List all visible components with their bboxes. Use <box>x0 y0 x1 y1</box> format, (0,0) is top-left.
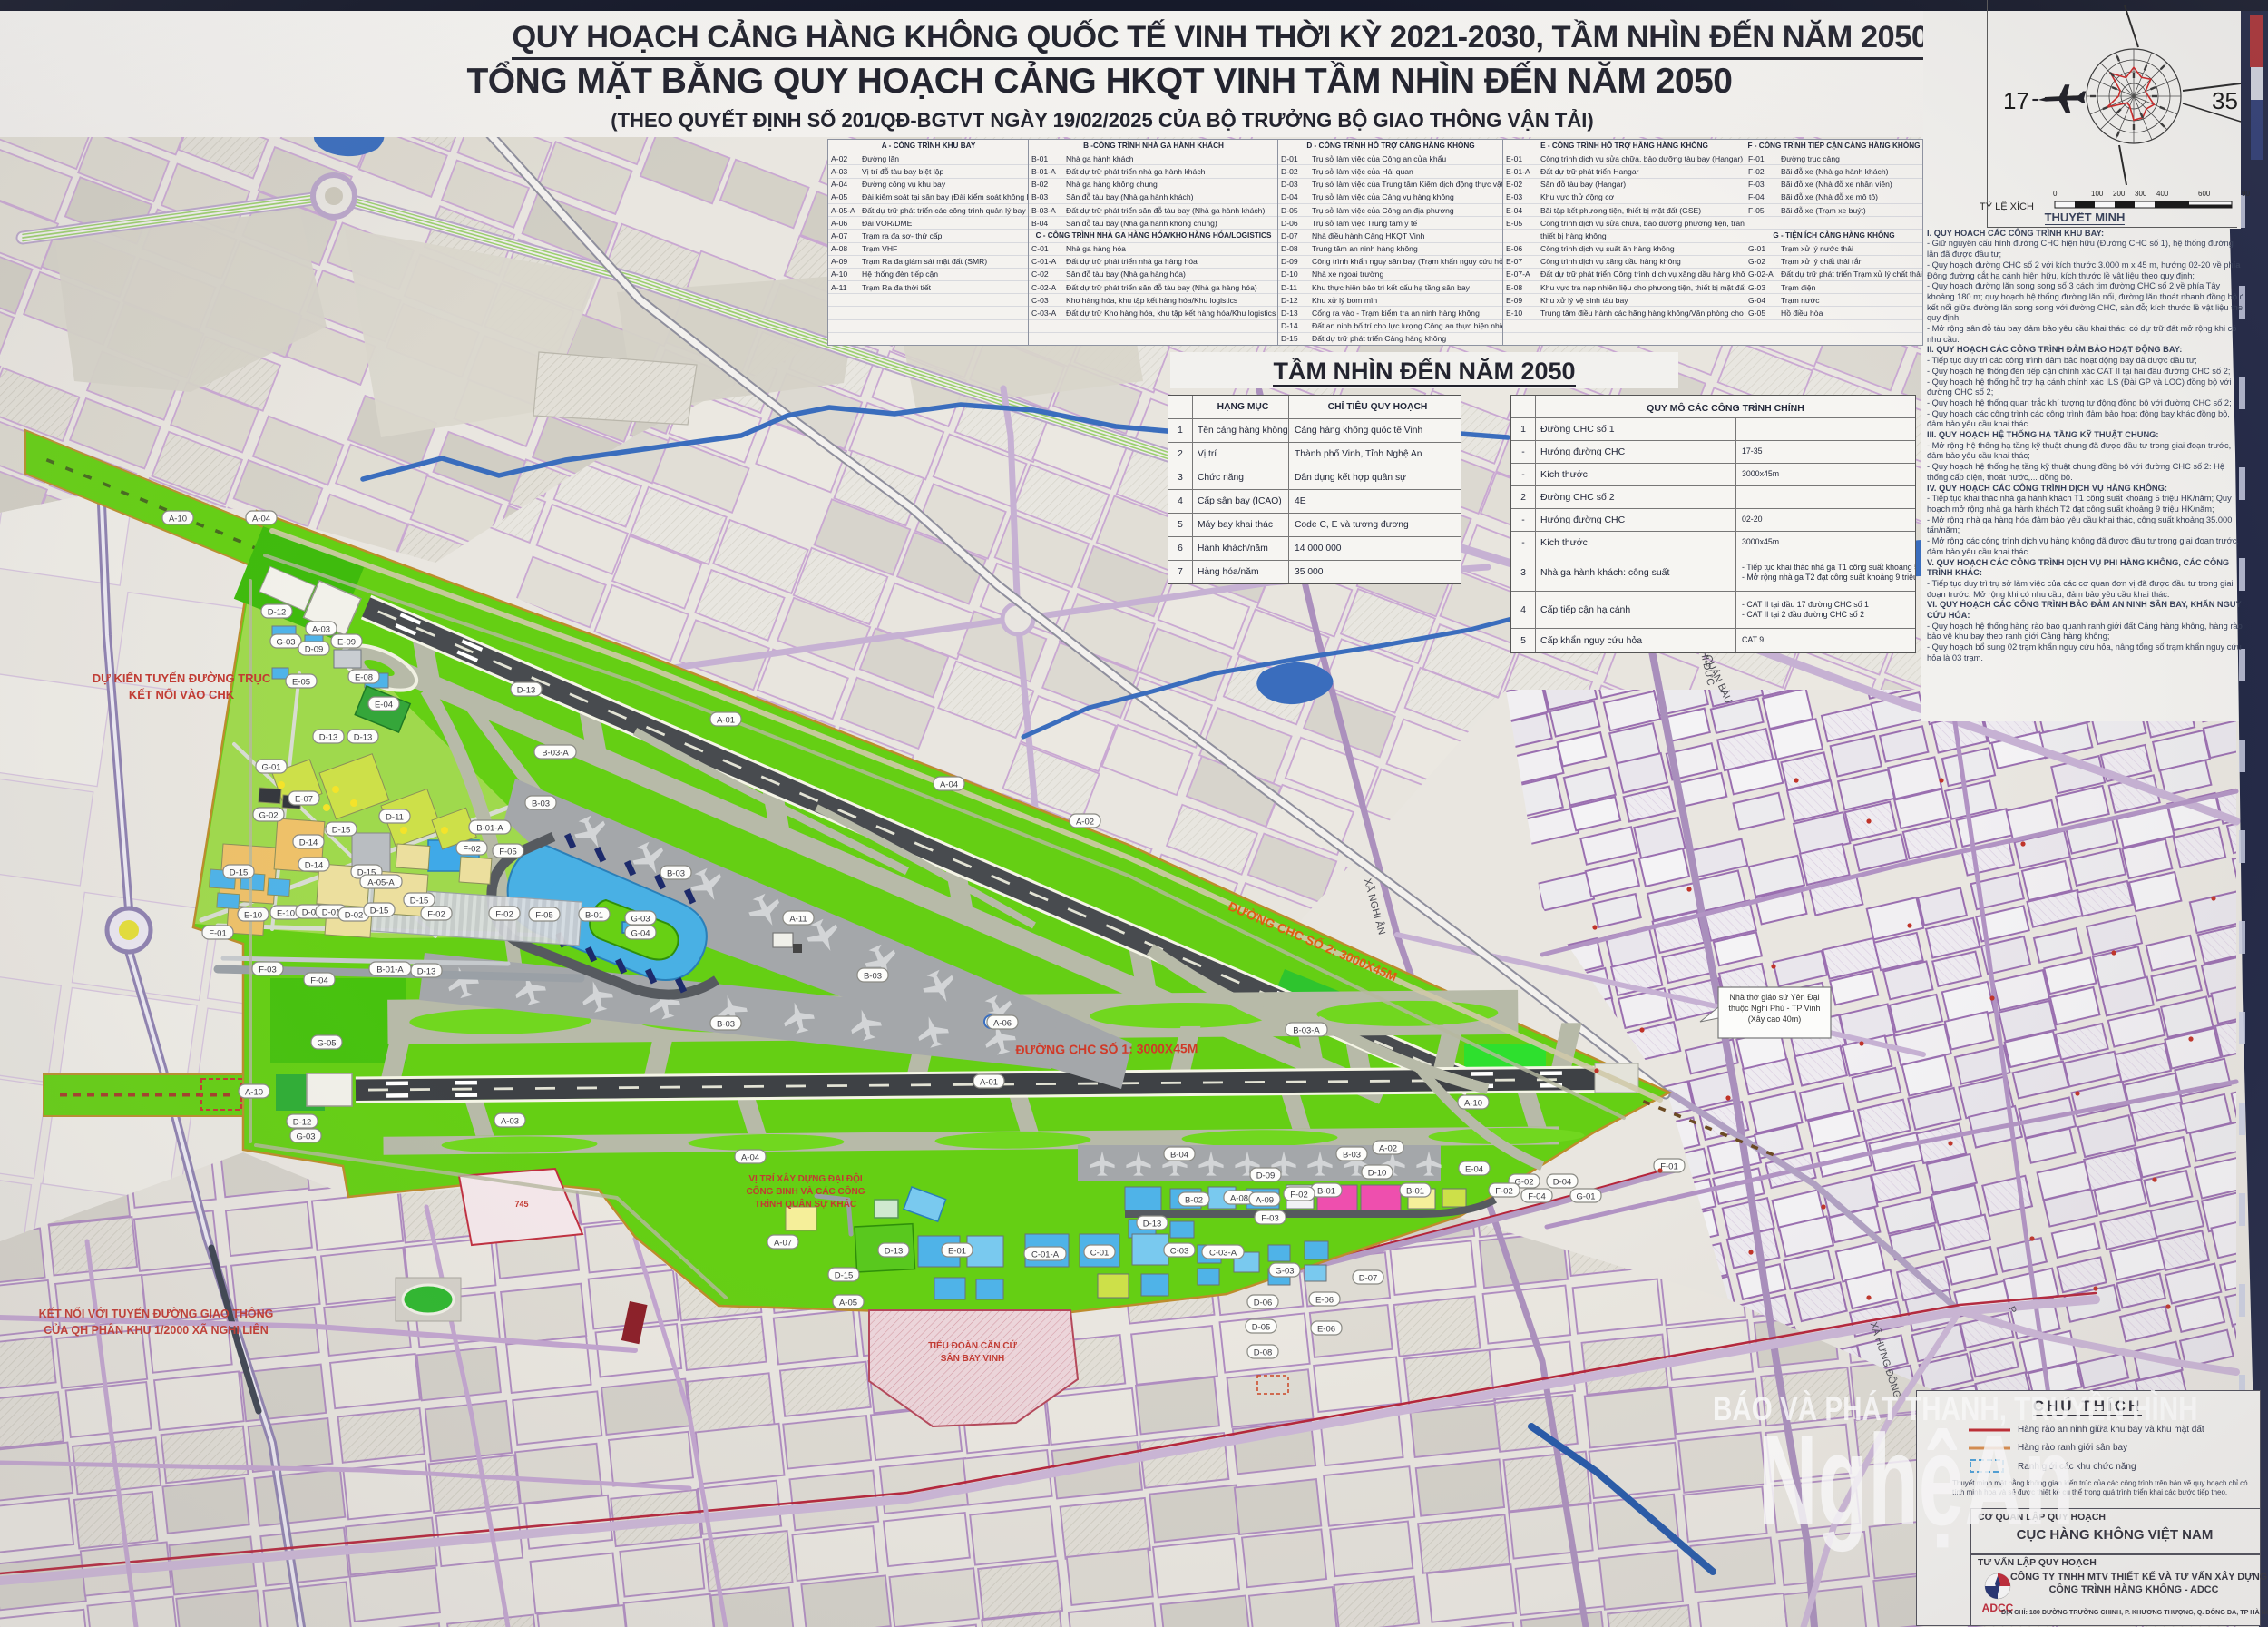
svg-text:E-08: E-08 <box>355 673 373 683</box>
svg-text:G-01: G-01 <box>1576 1192 1595 1202</box>
svg-text:A-05-A: A-05-A <box>367 878 395 888</box>
svg-text:F-02: F-02 <box>1290 1191 1308 1201</box>
svg-text:B-02: B-02 <box>1185 1196 1203 1206</box>
svg-text:D-15: D-15 <box>332 826 351 836</box>
svg-text:D-14: D-14 <box>299 838 318 848</box>
svg-text:D-07: D-07 <box>1359 1274 1378 1284</box>
svg-text:C-01: C-01 <box>1090 1249 1110 1259</box>
svg-text:TIỂU ĐOÀN CĂN CỨ: TIỂU ĐOÀN CĂN CỨ <box>928 1339 1017 1351</box>
svg-text:B-03: B-03 <box>717 1020 735 1030</box>
svg-text:B-03: B-03 <box>667 869 685 879</box>
svg-text:A-02: A-02 <box>1076 818 1094 828</box>
svg-text:TRÌNH QUÂN SỰ KHÁC: TRÌNH QUÂN SỰ KHÁC <box>755 1198 856 1210</box>
svg-text:F-04: F-04 <box>310 976 328 986</box>
svg-text:D-08: D-08 <box>1254 1348 1273 1358</box>
svg-text:DỰ KIẾN TUYẾN ĐƯỜNG TRỤC: DỰ KIẾN TUYẾN ĐƯỜNG TRỤC <box>93 671 271 685</box>
svg-text:400: 400 <box>2156 190 2169 198</box>
svg-text:Nhà thờ giáo sứ Yên Đại: Nhà thờ giáo sứ Yên Đại <box>1729 993 1819 1002</box>
svg-text:35: 35 <box>2212 87 2238 114</box>
svg-text:100: 100 <box>2091 190 2104 198</box>
svg-text:D-11: D-11 <box>386 813 404 823</box>
svg-text:D-13: D-13 <box>1143 1220 1162 1230</box>
svg-text:17: 17 <box>2003 87 2029 114</box>
svg-text:E-09: E-09 <box>337 638 356 648</box>
svg-text:G-04: G-04 <box>631 929 650 939</box>
svg-text:D-12: D-12 <box>293 1118 312 1128</box>
svg-text:A-01: A-01 <box>980 1078 998 1088</box>
svg-text:F-05: F-05 <box>535 911 553 921</box>
svg-text:F-01: F-01 <box>1660 1162 1678 1172</box>
svg-text:G-05: G-05 <box>317 1039 336 1049</box>
svg-text:G-03: G-03 <box>1275 1267 1294 1277</box>
svg-text:E-01: E-01 <box>948 1247 966 1257</box>
svg-text:(Xây cao 40m): (Xây cao 40m) <box>1748 1014 1802 1024</box>
svg-text:E-05: E-05 <box>292 678 310 688</box>
svg-text:900: 900 <box>2242 190 2250 198</box>
svg-text:D-02: D-02 <box>345 911 364 921</box>
svg-text:D-14: D-14 <box>305 861 324 871</box>
svg-text:200: 200 <box>2113 190 2126 198</box>
svg-text:F-02: F-02 <box>495 910 513 920</box>
svg-text:B-04: B-04 <box>1170 1151 1188 1161</box>
svg-text:0: 0 <box>2053 190 2058 198</box>
svg-text:F-02: F-02 <box>463 845 481 855</box>
svg-text:B-03-A: B-03-A <box>542 749 569 759</box>
svg-text:D-15: D-15 <box>835 1271 854 1281</box>
svg-text:E-10: E-10 <box>244 911 262 921</box>
svg-text:C-03: C-03 <box>1170 1247 1189 1257</box>
svg-text:B-03-A: B-03-A <box>1293 1026 1320 1036</box>
svg-text:E-04: E-04 <box>1465 1165 1483 1175</box>
svg-text:A-11: A-11 <box>789 915 807 925</box>
svg-text:D-13: D-13 <box>517 686 536 696</box>
svg-text:VỊ TRÍ XÂY DỰNG ĐẠI ĐỘI: VỊ TRÍ XÂY DỰNG ĐẠI ĐỘI <box>748 1172 863 1184</box>
svg-text:D-04: D-04 <box>1553 1178 1572 1188</box>
svg-text:300: 300 <box>2135 190 2147 198</box>
svg-text:D-09: D-09 <box>305 645 324 655</box>
svg-text:B-01-A: B-01-A <box>476 824 503 834</box>
svg-text:D-09: D-09 <box>1256 1171 1276 1181</box>
svg-text:F-04: F-04 <box>1528 1192 1546 1202</box>
svg-text:F-05: F-05 <box>499 848 517 858</box>
svg-text:D-15: D-15 <box>370 907 389 916</box>
svg-text:A-10: A-10 <box>1464 1099 1482 1109</box>
svg-text:A-09: A-09 <box>1256 1196 1274 1206</box>
svg-text:D-05: D-05 <box>1252 1323 1271 1333</box>
svg-text:C-03-A: C-03-A <box>1209 1249 1237 1259</box>
svg-text:A-04: A-04 <box>252 515 270 524</box>
svg-text:ĐƯỜNG CHC SỐ 1: 3000X45M: ĐƯỜNG CHC SỐ 1: 3000X45M <box>1015 1040 1198 1057</box>
svg-text:G-03: G-03 <box>631 915 650 925</box>
svg-text:A-02: A-02 <box>1379 1144 1397 1154</box>
svg-text:A-05: A-05 <box>839 1299 857 1308</box>
svg-text:G-03: G-03 <box>296 1132 315 1142</box>
svg-text:KẾT NỐI VỚI TUYẾN ĐƯỜNG GIAO T: KẾT NỐI VỚI TUYẾN ĐƯỜNG GIAO THÔNG <box>39 1307 274 1320</box>
svg-text:D-13: D-13 <box>885 1247 904 1257</box>
svg-text:D-12: D-12 <box>268 608 287 618</box>
svg-text:F-01: F-01 <box>209 929 227 939</box>
svg-text:D-15: D-15 <box>230 868 249 878</box>
svg-text:TỶ LỆ XÍCH: TỶ LỆ XÍCH <box>1980 201 2034 212</box>
svg-text:A-04: A-04 <box>741 1153 759 1163</box>
svg-text:F-03: F-03 <box>1261 1214 1279 1224</box>
svg-text:CỦA QH PHÂN KHU 1/2000 XÃ NGHI: CỦA QH PHÂN KHU 1/2000 XÃ NGHI LIÊN <box>44 1323 269 1337</box>
svg-text:C-01-A: C-01-A <box>1031 1250 1060 1260</box>
svg-text:CÔNG BINH VÀ CÁC CÔNG: CÔNG BINH VÀ CÁC CÔNG <box>746 1185 865 1197</box>
svg-text:A-04: A-04 <box>940 780 958 790</box>
svg-text:A-07: A-07 <box>774 1239 792 1249</box>
svg-text:E-10: E-10 <box>277 909 295 919</box>
svg-text:D-13: D-13 <box>319 733 338 743</box>
svg-text:SÂN BAY VINH: SÂN BAY VINH <box>941 1352 1005 1364</box>
svg-text:A-06: A-06 <box>993 1019 1012 1029</box>
svg-text:KẾT NỐI VÀO CHK: KẾT NỐI VÀO CHK <box>129 688 235 701</box>
svg-text:F-02: F-02 <box>1495 1187 1513 1197</box>
svg-text:B-01: B-01 <box>585 911 603 921</box>
svg-text:E-06: E-06 <box>1315 1296 1334 1306</box>
svg-text:A-01: A-01 <box>717 716 735 726</box>
svg-text:D-13: D-13 <box>417 967 436 977</box>
svg-text:B-03: B-03 <box>532 799 550 809</box>
svg-text:F-02: F-02 <box>427 910 445 920</box>
svg-text:A-08: A-08 <box>1230 1194 1248 1204</box>
svg-text:B-03: B-03 <box>1343 1151 1361 1161</box>
svg-text:E-04: E-04 <box>375 701 393 711</box>
svg-text:D-10: D-10 <box>1368 1169 1387 1179</box>
svg-text:B-01: B-01 <box>1317 1187 1335 1197</box>
svg-text:thuộc Nghi Phú - TP Vinh: thuộc Nghi Phú - TP Vinh <box>1728 1004 1820 1013</box>
svg-text:F-03: F-03 <box>259 965 277 975</box>
svg-text:B-01-A: B-01-A <box>376 965 404 975</box>
svg-text:D-15: D-15 <box>410 897 429 907</box>
svg-text:E-06: E-06 <box>1317 1325 1335 1335</box>
svg-text:G-03: G-03 <box>276 638 295 648</box>
svg-text:600: 600 <box>2198 190 2211 198</box>
svg-text:D-06: D-06 <box>1254 1299 1273 1308</box>
svg-text:A-10: A-10 <box>169 515 187 524</box>
svg-text:A-03: A-03 <box>501 1117 519 1127</box>
svg-text:E-07: E-07 <box>295 795 313 805</box>
svg-text:745: 745 <box>514 1200 528 1209</box>
svg-text:D-13: D-13 <box>354 733 373 743</box>
svg-text:B-03: B-03 <box>864 972 882 982</box>
svg-text:A-03: A-03 <box>312 625 330 635</box>
svg-text:B-01: B-01 <box>1406 1187 1424 1197</box>
svg-text:A-10: A-10 <box>245 1088 263 1098</box>
svg-text:G-01: G-01 <box>261 763 280 773</box>
svg-text:D-01: D-01 <box>322 908 341 918</box>
svg-text:G-02: G-02 <box>259 811 278 821</box>
